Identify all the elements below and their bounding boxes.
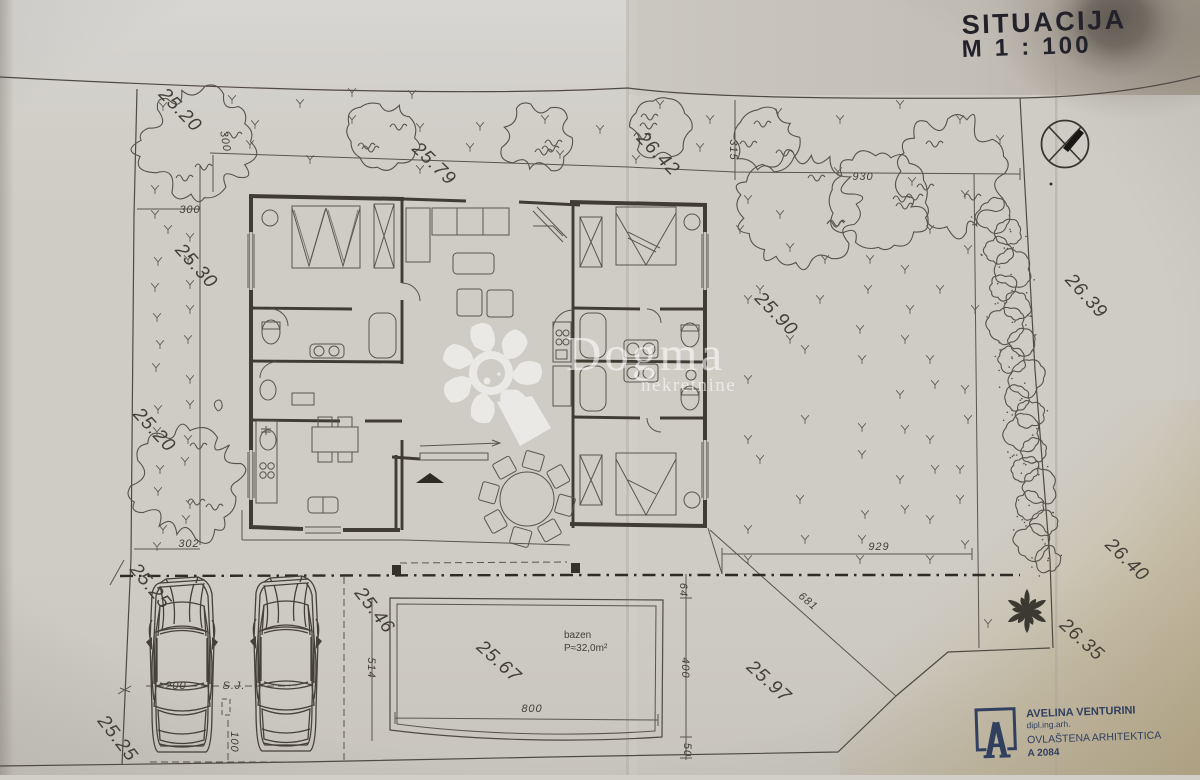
svg-text:302: 302 xyxy=(178,538,199,550)
svg-text:929: 929 xyxy=(868,541,889,553)
svg-text:dipl.ing.arh.: dipl.ing.arh. xyxy=(1026,719,1070,731)
svg-text:A 2084: A 2084 xyxy=(1027,747,1060,759)
svg-text:300: 300 xyxy=(179,204,200,216)
svg-text:400: 400 xyxy=(679,657,691,678)
svg-text:200: 200 xyxy=(164,680,186,692)
svg-text:930: 930 xyxy=(852,171,873,183)
svg-text:315: 315 xyxy=(727,139,739,160)
svg-text:S.J.: S.J. xyxy=(223,680,246,692)
svg-text:64: 64 xyxy=(677,583,689,597)
svg-text:P≈32,0m²: P≈32,0m² xyxy=(564,643,608,654)
svg-text:M 1 : 100: M 1 : 100 xyxy=(961,31,1092,63)
svg-text:800: 800 xyxy=(521,703,542,715)
svg-text:514: 514 xyxy=(365,657,377,678)
svg-text:50: 50 xyxy=(681,743,693,757)
svg-text:nekretnine: nekretnine xyxy=(641,375,736,396)
svg-text:100: 100 xyxy=(228,731,240,752)
svg-text:Dogma: Dogma xyxy=(566,326,725,381)
svg-text:bazen: bazen xyxy=(564,630,591,641)
